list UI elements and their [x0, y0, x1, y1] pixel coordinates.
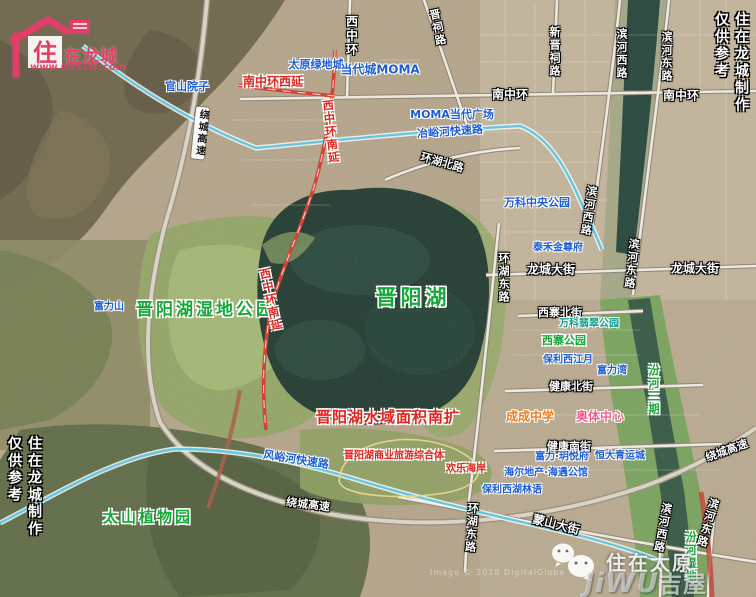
road-huanhu-donglu-north-label: 环湖东路 [497, 252, 509, 304]
road-fengyuhe-expressway-label: 风峪河快速路 [262, 449, 329, 471]
anno-huanle-haian-label: 欢乐海岸 [446, 465, 486, 476]
jiwu-latin: JiWU [584, 568, 659, 597]
estate-taihe-jinzunfu-label: 泰禾金尊府 [533, 244, 583, 255]
watermark-right-line2: 仅供参考 [713, 12, 729, 80]
satellite-map: 西中环晋祠路新晋祠路滨河西路滨河东路太原绿地城当代城MOMA南中环西延官山院子南… [0, 0, 756, 597]
park-wanke-zhongyang-label: 万科中央公园 [504, 197, 570, 209]
watermark-right: 住在龙城制作 仅供参考 [711, 12, 751, 114]
estate-moma-plaza-label: MOMA当代广场 [410, 109, 494, 121]
road-huanhu-beilu-label: 环湖北路 [419, 151, 465, 175]
road-huanhu-donglu-south-label: 环湖东路 [463, 502, 478, 555]
estate-baoli-xihu-linyu-label: 保利西湖林语 [482, 486, 542, 497]
estate-haier-haiyu-label: 海尔地产·海遇公馆 [504, 469, 588, 480]
estate-baoli-xijiangyue-label: 保利西江月 [543, 356, 593, 367]
watermark-right-line1: 住在龙城制作 [733, 12, 749, 114]
road-yeyuhe-expressway-label: 冶峪河快速路 [417, 124, 484, 140]
road-xizhonghuan-nanyan-n-label: 西中环南延 [321, 99, 340, 165]
jiwu-watermark: JiWU吉屋 [584, 565, 707, 597]
road-jinci-lu-label: 晋祠路 [427, 8, 447, 49]
road-longcheng-dajie-right-label: 龙城大街 [671, 263, 719, 276]
road-raocheng-gaosu-south-label: 绕城高速 [285, 496, 330, 513]
estate-dangdaicheng-moma-label: 当代城MOMA [340, 64, 419, 77]
watermark-left-line1: 住在龙城制作 [26, 436, 42, 538]
road-binhe-xilu-mid-label: 滨河西路 [579, 184, 598, 237]
estate-taiyuan-ludicheng-label: 太原绿地城 [289, 59, 344, 71]
road-binhe-donglu-north-label: 滨河东路 [660, 31, 672, 83]
park-xizhai-label: 西寨公园 [542, 335, 586, 347]
watermark-left-line2: 仅供参考 [6, 436, 22, 504]
road-jiankang-beijie-label: 健康北街 [549, 381, 593, 393]
school-chengcheng-label: 成成中学 [506, 411, 554, 424]
road-xinjinci-lu-label: 新晋祠路 [548, 26, 560, 78]
estate-fulishan-label: 富力山 [94, 303, 124, 314]
road-raocheng-gaosu-east-label: 绕城高速 [704, 438, 749, 464]
road-nanzhonghuan-right-label: 南中环 [663, 90, 699, 103]
wechat-watermark: 住在太原 JiWU吉屋 [526, 507, 756, 597]
road-longcheng-dajie-left-label: 龙城大街 [527, 264, 575, 277]
estate-guanshan-yuanzi-label: 官山院子 [165, 81, 209, 93]
anno-business-tourism-complex-label: 晋阳湖商业旅游综合体 [344, 452, 444, 463]
river-fenhe-sanqi-label: 汾河三期 [647, 364, 659, 416]
estate-hengda-qingyuncheng-label: 恒大青运城 [595, 452, 645, 463]
road-xizhonghuan-label: 西中环 [345, 15, 358, 57]
road-raocheng-gaosu-nw-label: 绕城高速 [191, 106, 209, 159]
road-xizhai-beijie-label: 西寨北街 [538, 307, 582, 319]
zhuzailongcheng-logo: 住 在龙城 www.0351fc.com [8, 12, 128, 78]
jiwu-cn: 吉屋 [659, 572, 707, 597]
lake-jinyang-label: 晋阳湖 [376, 287, 451, 310]
road-nanzhonghuan-center-label: 南中环 [492, 89, 528, 102]
logo-url-text: www.0351fc.com [30, 62, 126, 73]
road-binhe-donglu-mid-label: 滨河东路 [622, 238, 639, 291]
road-nanzhonghuan-xiyan-label: 南中环西延 [243, 76, 303, 89]
watermark-left: 住在龙城制作 仅供参考 [4, 436, 44, 538]
anno-lake-south-expand-label: 晋阳湖水域面积南扩 [316, 409, 460, 425]
road-binhe-xilu-north-label: 滨河西路 [615, 28, 627, 80]
park-wanke-feicui-label: 万科翡翠公园 [559, 320, 619, 331]
estate-fuli-yueyuefu-label: 富力·玥悦府 [535, 453, 589, 464]
park-jinyanghu-shidi-label: 晋阳湖湿地公园 [136, 301, 276, 319]
park-taishan-zhiwuyuan-label: 太山植物园 [103, 509, 193, 525]
estate-fuliwan-label: 富力湾 [597, 367, 627, 378]
venue-aoti-zhongxin-label: 奥体中心 [576, 411, 624, 424]
